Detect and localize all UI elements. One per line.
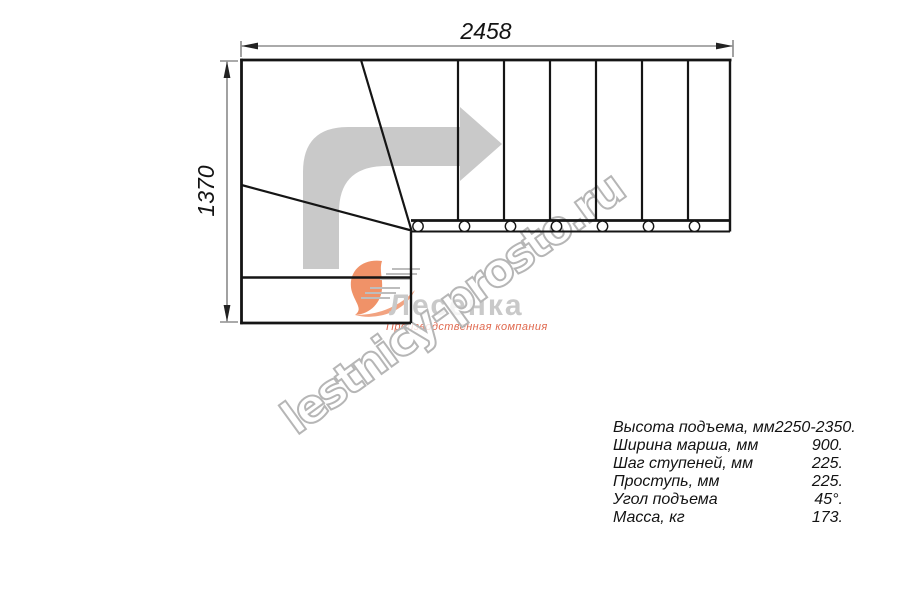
spec-row-mass: Масса, кг 173. bbox=[613, 509, 843, 527]
stair-plan-drawing: Лесенка Производственная компания lestni… bbox=[0, 0, 900, 600]
width-dimension-value: 2458 bbox=[459, 18, 511, 44]
width-arrow-right bbox=[716, 43, 733, 50]
winder-edge-lower bbox=[242, 185, 412, 231]
spec-label: Угол подъема bbox=[613, 491, 718, 509]
staircase-plan bbox=[240, 59, 731, 325]
spec-value: 225. bbox=[812, 473, 843, 491]
spec-value: 173. bbox=[812, 509, 843, 527]
spec-value: 2250-2350. bbox=[775, 419, 856, 437]
spec-row-tread: Проступь, мм 225. bbox=[613, 473, 843, 491]
spec-label: Высота подъема, мм bbox=[613, 419, 775, 437]
spec-value: 900. bbox=[812, 437, 843, 455]
spec-row-flight-width: Ширина марша, мм 900. bbox=[613, 437, 843, 455]
spec-label: Масса, кг bbox=[613, 509, 685, 527]
spec-row-step-pitch: Шаг ступеней, мм 225. bbox=[613, 455, 843, 473]
spec-row-angle: Угол подъема 45°. bbox=[613, 491, 843, 509]
height-arrow-top bbox=[224, 61, 231, 78]
spec-label: Шаг ступеней, мм bbox=[613, 455, 753, 473]
height-dimension-value: 1370 bbox=[193, 165, 219, 216]
width-dimension: 2458 bbox=[241, 18, 733, 57]
spec-label: Ширина марша, мм bbox=[613, 437, 758, 455]
winder-edge-upper bbox=[361, 60, 412, 231]
spec-table: Высота подъема, мм 2250-2350. Ширина мар… bbox=[613, 419, 843, 527]
width-arrow-left bbox=[241, 43, 258, 50]
baluster-markers bbox=[413, 221, 700, 231]
height-dimension: 1370 bbox=[193, 61, 238, 322]
height-arrow-bottom bbox=[224, 305, 231, 322]
spec-row-height: Высота подъема, мм 2250-2350. bbox=[613, 419, 843, 437]
tread-riser-lines bbox=[458, 60, 688, 221]
spec-value: 45°. bbox=[814, 491, 843, 509]
spec-label: Проступь, мм bbox=[613, 473, 719, 491]
spec-value: 225. bbox=[812, 455, 843, 473]
